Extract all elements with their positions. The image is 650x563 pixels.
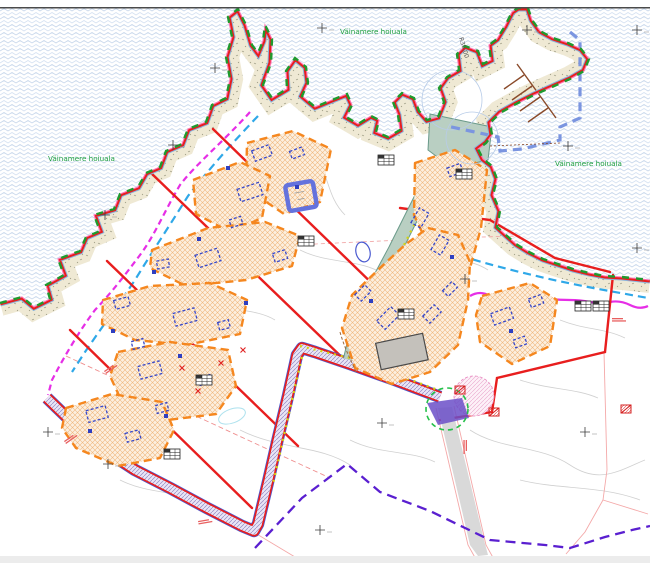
info-tables-marker xyxy=(164,449,180,459)
plan-map-screenshot: Väinamere hoiuala Väinamere hoiuala Väin… xyxy=(0,0,650,563)
protected-area-label-right: Väinamere hoiuala xyxy=(555,159,622,168)
info-tables-marker xyxy=(378,155,394,165)
utility-symbols-marker xyxy=(621,405,631,413)
site-plan-svg: Väinamere hoiuala Väinamere hoiuala Väin… xyxy=(0,0,650,563)
info-tables-marker xyxy=(593,301,609,311)
bottom-border-strip xyxy=(0,556,650,563)
top-border-line xyxy=(0,7,650,9)
info-tables-marker xyxy=(456,169,472,179)
protected-area-label-top: Väinamere hoiuala xyxy=(340,27,407,36)
utility-symbols-marker xyxy=(455,386,465,394)
info-tables-marker xyxy=(298,236,314,246)
info-tables-marker xyxy=(398,309,414,319)
info-tables-marker xyxy=(196,375,212,385)
info-tables-marker xyxy=(575,301,591,311)
utility-symbols-marker xyxy=(489,408,499,416)
protected-area-label-left: Väinamere hoiuala xyxy=(48,154,115,163)
